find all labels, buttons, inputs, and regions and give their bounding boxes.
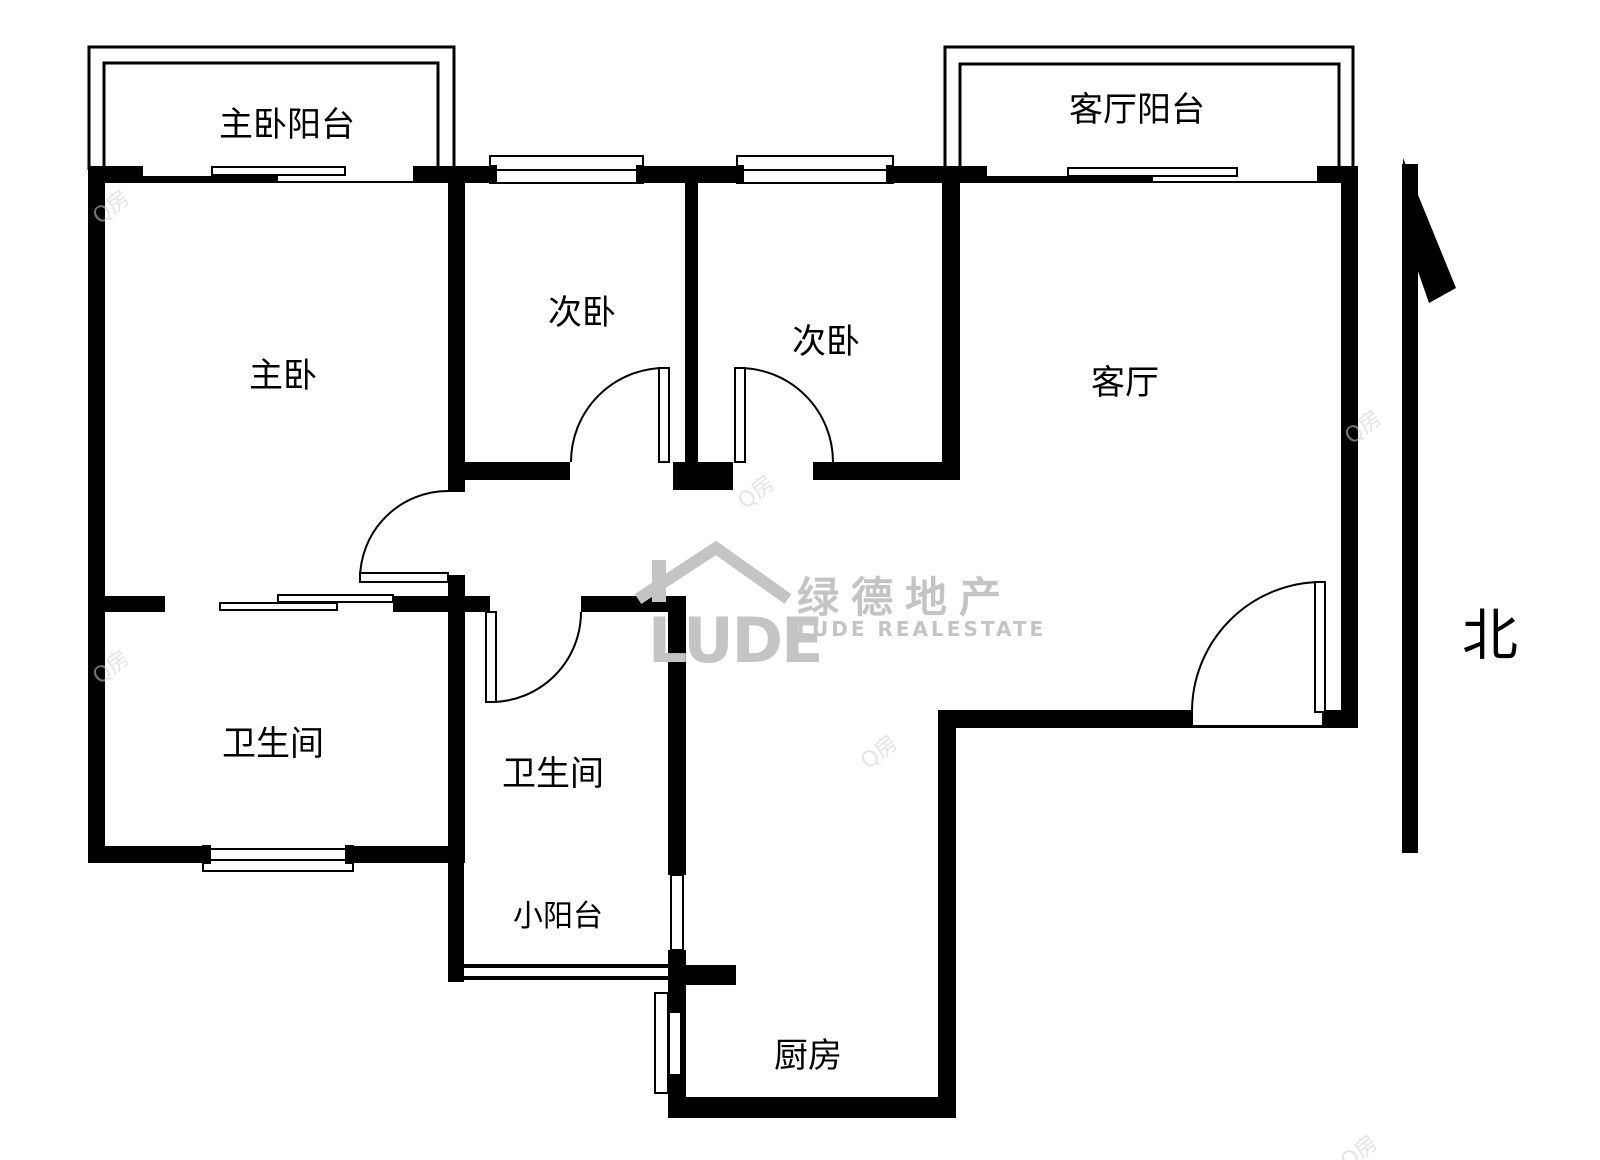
label-master-balcony: 主卧阳台 [219,105,355,145]
window-bathroom-left [203,846,353,871]
north-arrow: 北 [1402,158,1518,853]
floor-plan-canvas: 北 LUDE 绿德地产 LUDE REALESTATE Q房 Q房 Q房 Q房 … [0,0,1600,1160]
swing-doors [360,368,1325,712]
logo-brand-en: LUDE REALESTATE [797,617,1046,641]
label-small-balcony: 小阳台 [513,899,603,934]
label-bedroom-left: 次卧 [548,293,616,333]
window-bedroom-left [490,156,643,183]
door-bathroom-mid [486,612,581,702]
tile-watermark: Q房 [733,471,779,515]
logo-brand-text: LUDE [648,604,821,677]
label-living-room: 客厅 [1091,363,1159,403]
sliding-door-master-balcony [143,167,345,181]
label-bathroom-mid: 卫生间 [502,754,604,794]
window-bedroom-right [737,156,893,183]
sliding-door-bathroom-left [220,595,393,610]
label-kitchen: 厨房 [774,1036,842,1076]
door-master-bedroom [360,491,448,582]
watermark-logo: LUDE 绿德地产 LUDE REALESTATE [638,548,1046,677]
tile-watermark: Q房 [856,731,902,775]
sliding-door-living-balcony [985,168,1237,181]
label-living-balcony: 客厅阳台 [1069,90,1205,130]
logo-brand-cn: 绿德地产 [797,573,1013,622]
label-master-bedroom: 主卧 [249,356,317,396]
label-bedroom-right: 次卧 [792,322,860,362]
window-small-balcony [671,875,683,950]
north-arrow-shaft [1402,164,1418,853]
door-entrance [1192,582,1325,712]
tile-watermark: Q房 [1336,1131,1382,1160]
door-bedroom-right [735,368,833,462]
north-label: 北 [1462,604,1518,669]
label-bathroom-left: 卫生间 [222,724,324,764]
door-bedroom-left [571,368,669,462]
